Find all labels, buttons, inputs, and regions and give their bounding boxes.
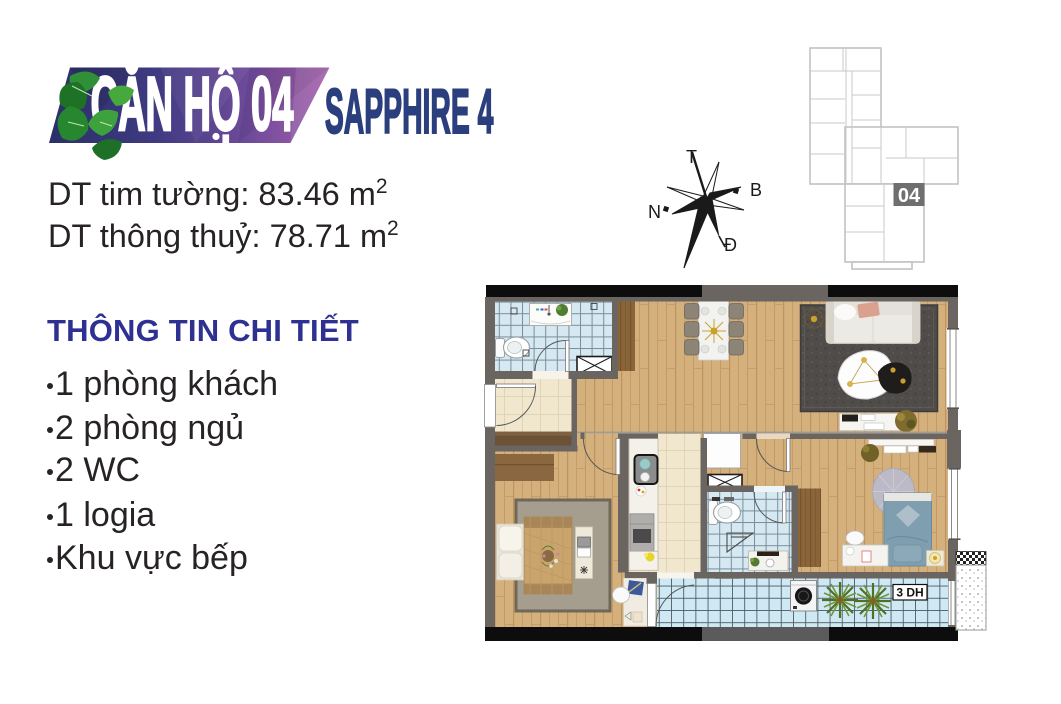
svg-text:THÔNG TIN CHI TIẾT: THÔNG TIN CHI TIẾT	[47, 312, 359, 348]
svg-text:DT tim tường: 83.46 m2: DT tim tường: 83.46 m2	[48, 175, 388, 212]
svg-text:Đ: Đ	[724, 235, 737, 255]
svg-text:B: B	[750, 180, 762, 200]
svg-text:T: T	[686, 147, 697, 167]
svg-text:04: 04	[898, 185, 921, 207]
svg-text:2 phòng ngủ: 2 phòng ngủ	[55, 409, 244, 447]
svg-text:Khu vực bếp: Khu vực bếp	[55, 539, 248, 577]
svg-text:SAPPHIRE 4: SAPPHIRE 4	[325, 78, 494, 148]
svg-text:1 phòng khách: 1 phòng khách	[55, 365, 278, 403]
svg-text:DT thông thuỷ: 78.71 m2: DT thông thuỷ: 78.71 m2	[48, 217, 399, 254]
svg-text:3 DH: 3 DH	[896, 586, 923, 600]
svg-text:1 logia: 1 logia	[55, 496, 155, 534]
svg-text:2 WC: 2 WC	[55, 451, 140, 489]
svg-text:N: N	[648, 202, 661, 222]
